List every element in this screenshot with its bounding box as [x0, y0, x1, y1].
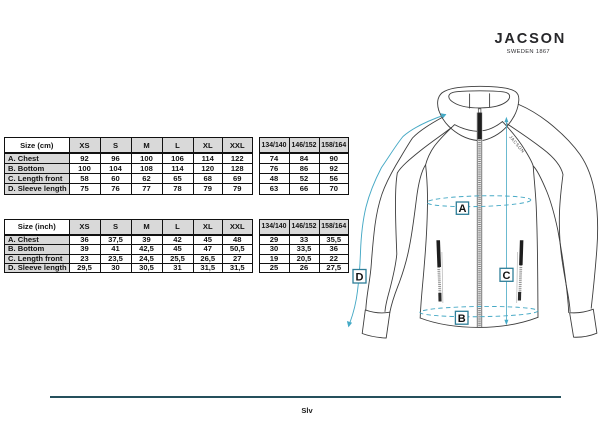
- svg-text:JACSON: JACSON: [508, 135, 525, 154]
- svg-text:A: A: [459, 203, 467, 215]
- svg-text:B: B: [458, 313, 466, 325]
- svg-text:D: D: [356, 271, 364, 283]
- svg-text:C: C: [503, 270, 511, 282]
